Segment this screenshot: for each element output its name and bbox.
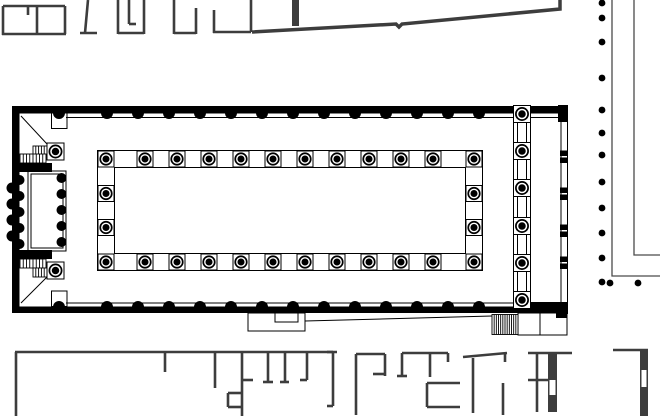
floor-plan-figure xyxy=(0,0,660,416)
basilica-floor-plan-svg xyxy=(0,0,660,416)
precinct-boundary-wall xyxy=(252,0,560,32)
north-shops xyxy=(2,0,251,35)
nave-peristyle xyxy=(98,151,483,271)
south-complex xyxy=(15,350,648,416)
forum-portico-colonnade xyxy=(599,0,660,286)
basilica-walls xyxy=(7,105,569,318)
east-colonnade xyxy=(514,106,531,309)
